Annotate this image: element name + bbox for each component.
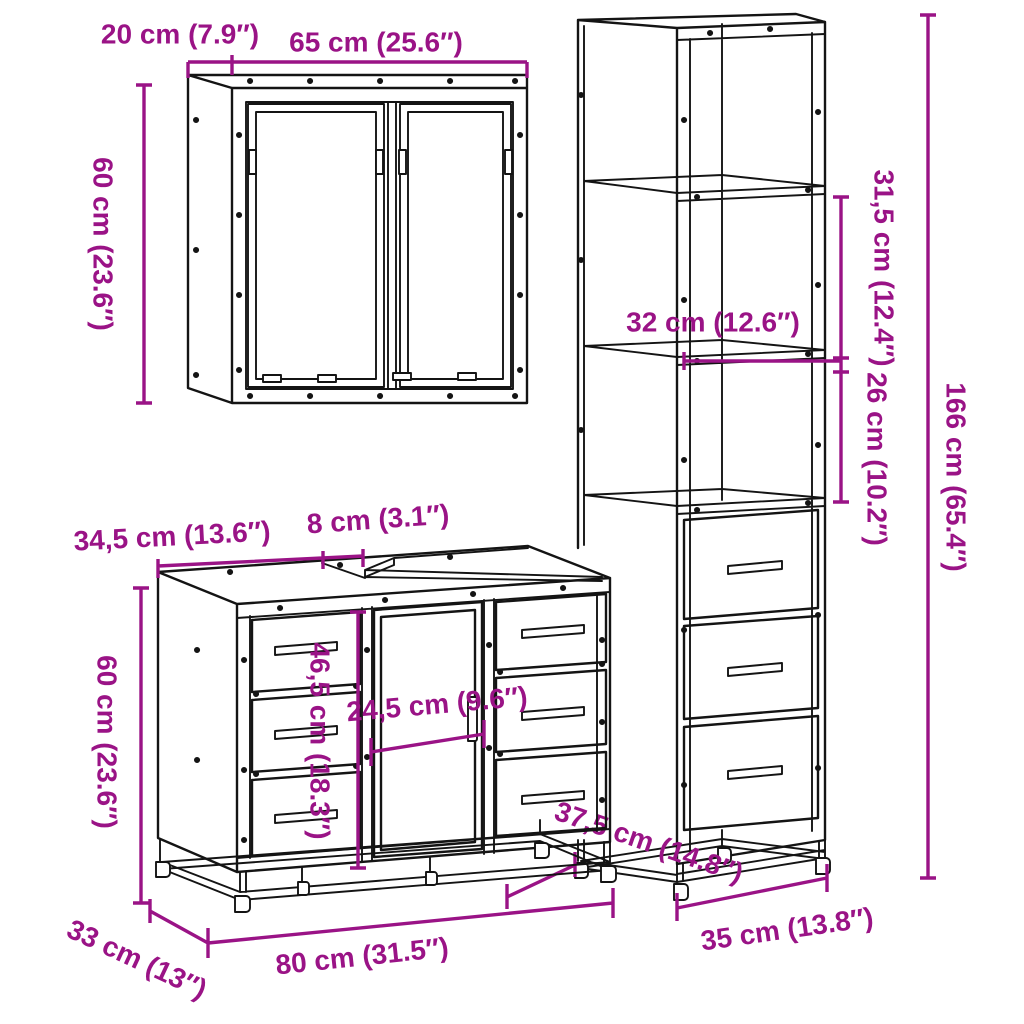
wall-cabinet-hinges-and-handles <box>249 150 512 382</box>
dim-label-wall-height: 60 cm (23.6″) <box>88 157 119 331</box>
wall-cabinet-drawing <box>188 75 527 403</box>
tall-cabinet-drawer-handles <box>728 561 782 779</box>
furniture-dimension-diagram: 20 cm (7.9″) 65 cm (25.6″) 60 cm (23.6″)… <box>0 0 1024 1024</box>
wall-cabinet-screws <box>196 81 520 396</box>
bathroom-furniture-set-diagram: 20 cm (7.9″) 65 cm (25.6″) 60 cm (23.6″)… <box>0 0 1024 1024</box>
wall-cabinet-panels <box>246 102 513 389</box>
wall-cabinet-dimension-lines <box>136 55 527 403</box>
dim-label-tall-height: 166 cm (65.4″) <box>941 382 972 571</box>
dim-label-tall-width: 35 cm (13.8″) <box>699 902 875 957</box>
dim-label-tall-upper-section: 31,5 cm (12.4″) <box>869 169 900 366</box>
wall-cabinet-outline <box>188 75 527 403</box>
dim-label-wall-depth: 20 cm (7.9″) <box>101 19 259 50</box>
tall-cabinet-frame <box>584 24 825 854</box>
tall-cabinet-drawing <box>575 14 830 900</box>
tall-cabinet-dimensions: 31,5 cm (12.4″) 26 cm (10.2″) 166 cm (65… <box>507 15 972 956</box>
dim-label-vanity-drawer-column-height: 46,5 cm (18.3″) <box>305 642 336 839</box>
dim-label-vanity-height: 60 cm (23.6″) <box>92 655 123 829</box>
tall-cabinet-outline <box>578 14 825 864</box>
vanity-cabinet-drawing <box>156 546 616 912</box>
dim-label-vanity-width: 80 cm (31.5″) <box>274 932 450 981</box>
dim-label-tall-lower-section: 26 cm (10.2″) <box>862 372 893 546</box>
dim-label-wall-width: 65 cm (25.6″) <box>289 27 463 58</box>
dim-label-tall-shelf-width: 32 cm (12.6″) <box>626 307 800 338</box>
dim-label-vanity-top-gap: 8 cm (3.1″) <box>306 499 450 540</box>
dim-label-vanity-top-left-section: 34,5 cm (13.6″) <box>73 515 271 556</box>
dim-label-vanity-depth: 33 cm (13″) <box>62 913 211 1005</box>
